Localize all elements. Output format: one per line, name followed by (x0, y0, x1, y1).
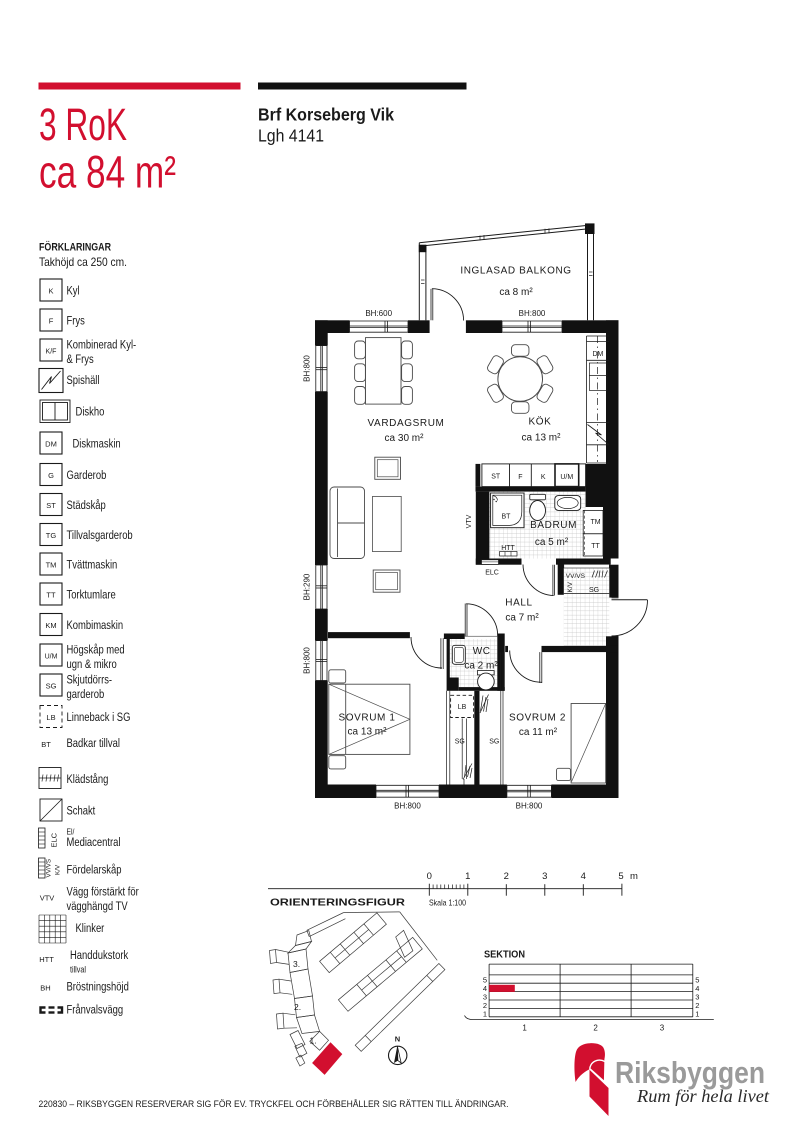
svg-text:1: 1 (522, 1024, 527, 1033)
svg-text:Kombinerad Kyl-: Kombinerad Kyl- (66, 339, 136, 352)
svg-text:Lgh 4141: Lgh 4141 (258, 126, 324, 146)
svg-text:SG: SG (455, 739, 465, 746)
svg-text:Schakt: Schakt (66, 805, 95, 818)
svg-text:ugn & mikro: ugn & mikro (66, 658, 116, 671)
svg-text:Mediacentral: Mediacentral (66, 836, 120, 849)
svg-text:Kombimaskin: Kombimaskin (66, 619, 123, 632)
svg-text:Diskmaskin: Diskmaskin (72, 438, 120, 451)
svg-text:ELC: ELC (50, 832, 59, 847)
svg-text:VV/VS: VV/VS (46, 859, 53, 878)
svg-text:ORIENTERINGSFIGUR: ORIENTERINGSFIGUR (270, 898, 406, 909)
svg-text:LB: LB (46, 713, 55, 722)
svg-text:KÖK: KÖK (529, 416, 552, 428)
svg-text:Skjutdörrs-: Skjutdörrs- (66, 674, 112, 687)
svg-text:KM: KM (45, 621, 56, 630)
svg-text:BT: BT (502, 514, 512, 521)
svg-text:Frys: Frys (66, 315, 84, 328)
svg-text:5: 5 (618, 871, 623, 882)
svg-text:Riksbyggen: Riksbyggen (615, 1056, 765, 1090)
svg-text:K: K (541, 474, 546, 481)
svg-text:Handdukstork: Handdukstork (70, 949, 129, 962)
svg-text:BH:800: BH:800 (394, 802, 421, 811)
svg-text:Fördelarskåp: Fördelarskåp (66, 864, 121, 877)
svg-text:BH:800: BH:800 (516, 802, 543, 811)
svg-text:4: 4 (581, 871, 586, 882)
svg-text:3.: 3. (293, 959, 300, 969)
svg-text:2.: 2. (294, 1002, 301, 1012)
svg-text:3: 3 (542, 871, 547, 882)
svg-text:ST: ST (46, 501, 56, 510)
svg-text:ca 2 m²: ca 2 m² (464, 661, 498, 672)
svg-text:TM: TM (590, 519, 600, 526)
svg-text:2: 2 (593, 1024, 598, 1033)
svg-text:Linneback i SG: Linneback i SG (66, 711, 130, 724)
svg-text:Städskåp: Städskåp (66, 499, 105, 512)
svg-text:SG: SG (489, 739, 499, 746)
svg-text:DM: DM (45, 440, 57, 449)
svg-text:BH:290: BH:290 (303, 573, 312, 600)
svg-text:K: K (48, 287, 53, 296)
svg-text:Diskho: Diskho (76, 406, 105, 419)
svg-text:ca 11 m²: ca 11 m² (519, 727, 558, 738)
svg-text:TT: TT (591, 543, 600, 550)
svg-text:ca 13 m²: ca 13 m² (348, 727, 388, 738)
svg-text:ca 8 m²: ca 8 m² (499, 287, 533, 298)
svg-text:K/V: K/V (55, 864, 62, 875)
svg-text:SG: SG (46, 682, 57, 691)
svg-text:BH:600: BH:600 (365, 309, 392, 318)
svg-text:TG: TG (46, 531, 57, 540)
svg-text:DM: DM (592, 351, 603, 358)
svg-text:F: F (518, 474, 522, 481)
svg-text:SOVRUM 1: SOVRUM 1 (338, 713, 395, 724)
svg-text:Bröstningshöjd: Bröstningshöjd (66, 981, 128, 994)
svg-text:G: G (48, 471, 54, 480)
svg-text:BH:800: BH:800 (519, 309, 546, 318)
svg-text:U/M: U/M (45, 654, 58, 661)
svg-text:HALL: HALL (505, 598, 532, 609)
svg-text:Kyl: Kyl (66, 285, 79, 298)
svg-text:Spishäll: Spishäll (66, 374, 99, 387)
svg-text:Klinker: Klinker (76, 922, 105, 935)
svg-text:Takhöjd ca 250 cm.: Takhöjd ca 250 cm. (39, 255, 127, 269)
svg-text:ca 30 m²: ca 30 m² (385, 433, 425, 444)
svg-text:Brf Korseberg Vik: Brf Korseberg Vik (258, 105, 394, 125)
svg-text:FÖRKLARINGAR: FÖRKLARINGAR (39, 241, 111, 254)
svg-text:TM: TM (46, 561, 57, 570)
svg-text:BH:800: BH:800 (303, 647, 312, 674)
svg-text:Garderob: Garderob (66, 469, 106, 482)
svg-text:LB: LB (458, 704, 467, 711)
svg-text:tillval: tillval (70, 965, 86, 975)
svg-text:VV/VS: VV/VS (566, 573, 586, 580)
svg-text:Tvättmaskin: Tvättmaskin (66, 559, 117, 572)
svg-text:Vägg förstärkt för: Vägg förstärkt för (66, 886, 139, 899)
svg-text:1: 1 (465, 871, 470, 882)
svg-text:VTV: VTV (466, 514, 473, 528)
svg-text:0: 0 (427, 871, 432, 882)
svg-text:Torktumlare: Torktumlare (66, 589, 115, 602)
svg-text:K/F: K/F (46, 349, 57, 356)
svg-text:1: 1 (695, 1009, 699, 1018)
svg-text:INGLASAD BALKONG: INGLASAD BALKONG (460, 266, 571, 277)
svg-text:SEKTION: SEKTION (484, 950, 525, 961)
svg-text:& Frys: & Frys (66, 353, 93, 366)
svg-text:1: 1 (483, 1009, 487, 1018)
svg-text:220830 – RIKSBYGGEN RESERVERAR: 220830 – RIKSBYGGEN RESERVERAR SIG FÖR E… (39, 1099, 509, 1109)
svg-text:m: m (630, 871, 638, 882)
svg-text:HTT: HTT (501, 545, 515, 552)
svg-text:BH: BH (40, 984, 50, 993)
svg-text:VTV: VTV (40, 894, 55, 903)
svg-text:U/M: U/M (560, 474, 573, 481)
svg-text:1.: 1. (310, 1036, 317, 1046)
svg-text:N: N (395, 1035, 400, 1044)
svg-text:BADRUM: BADRUM (530, 520, 577, 531)
svg-text:Frånvalsvägg: Frånvalsvägg (66, 1004, 123, 1017)
svg-text:TT: TT (46, 591, 56, 600)
svg-text:SOVRUM 2: SOVRUM 2 (509, 713, 566, 724)
svg-text:garderob: garderob (66, 688, 104, 701)
svg-text:VARDAGSRUM: VARDAGSRUM (368, 418, 445, 429)
svg-text:K/V: K/V (567, 581, 574, 592)
svg-text:HTT: HTT (39, 955, 54, 964)
svg-text:ca 7 m²: ca 7 m² (505, 613, 539, 624)
svg-text:F: F (49, 317, 54, 326)
svg-text:ca 13 m²: ca 13 m² (522, 433, 562, 444)
svg-text:ca 5 m²: ca 5 m² (535, 537, 569, 548)
svg-text:ca 84 m²: ca 84 m² (39, 147, 176, 198)
svg-text:SG: SG (589, 587, 599, 594)
svg-text:Tillvalsgarderob: Tillvalsgarderob (66, 529, 132, 542)
svg-text:WC: WC (473, 646, 491, 657)
svg-text:Badkar tillval: Badkar tillval (66, 737, 119, 750)
svg-text:Högskåp med: Högskåp med (66, 644, 124, 657)
svg-text:vägghängd TV: vägghängd TV (66, 900, 128, 913)
svg-text:3: 3 (660, 1024, 665, 1033)
svg-text:BT: BT (41, 740, 51, 749)
svg-text:ST: ST (491, 474, 501, 481)
svg-text:ELC: ELC (485, 570, 499, 577)
svg-text:2: 2 (504, 871, 509, 882)
svg-text:Skala 1:100: Skala 1:100 (429, 898, 466, 908)
svg-text:Rum för hela livet: Rum för hela livet (636, 1086, 770, 1106)
svg-text:3 RoK: 3 RoK (39, 99, 127, 150)
svg-text:Klädstång: Klädstång (66, 773, 108, 786)
svg-text:BH:800: BH:800 (303, 355, 312, 382)
